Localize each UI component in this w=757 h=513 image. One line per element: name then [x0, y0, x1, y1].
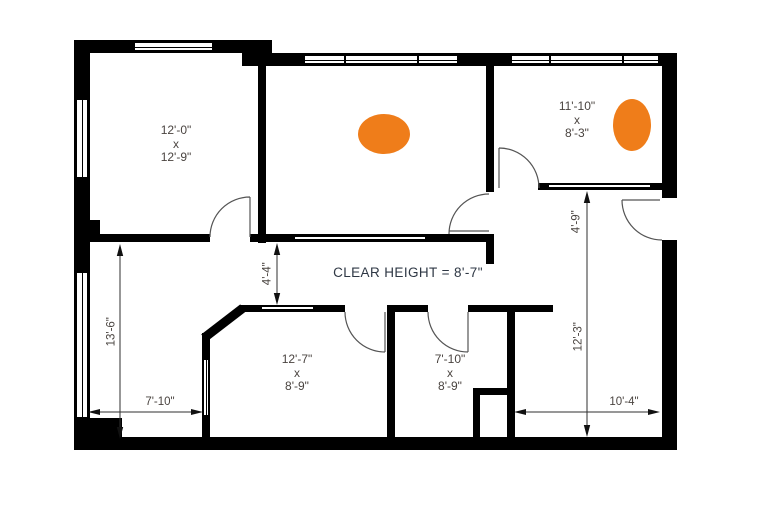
- arrowhead-icon: [514, 409, 526, 415]
- dimension-label-bottom-left-width: 7'-10": [120, 396, 200, 410]
- room-label-bottom-middle: 12'-7"x8'-9": [252, 353, 342, 394]
- room-marker-ellipse: [358, 114, 410, 154]
- arrowhead-icon: [88, 409, 100, 415]
- room-width: 7'-10": [435, 352, 466, 366]
- diagonal-wall: [204, 308, 243, 338]
- dimension-label-corridor-width: 4'-4": [261, 244, 275, 304]
- room-depth: 8'-3": [565, 126, 589, 140]
- dimension-label-hall-upper: 4'-9": [570, 192, 584, 252]
- arrowhead-icon: [584, 425, 590, 437]
- dimension-label-left-height: 13'-6": [105, 302, 119, 362]
- clear-height-annotation: CLEAR HEIGHT = 8'-7": [308, 266, 508, 280]
- arrowhead-icon: [274, 293, 280, 305]
- arrowhead-icon: [117, 244, 123, 256]
- room-width: 11'-10": [559, 99, 595, 113]
- room-sep: x: [447, 366, 453, 380]
- door-arc: [499, 148, 539, 188]
- room-sep: x: [574, 113, 580, 127]
- room-width: 12'-0": [161, 123, 192, 137]
- room-width: 12'-7": [282, 352, 313, 366]
- door-arc: [622, 200, 662, 240]
- room-sep: x: [173, 137, 179, 151]
- door-arc: [428, 312, 468, 352]
- door-arc: [210, 197, 250, 237]
- arrowhead-icon: [584, 191, 590, 203]
- arrowhead-icon: [648, 409, 660, 415]
- arrowhead-icon: [117, 427, 123, 439]
- room-label-bottom-right: 7'-10"x8'-9": [405, 353, 495, 394]
- room-label-top-right: 11'-10"x8'-3": [532, 100, 622, 141]
- dimension-label-bottom-right-width: 10'-4": [584, 396, 664, 410]
- door-arc: [345, 312, 385, 352]
- room-depth: 8'-9": [438, 379, 462, 393]
- arrowhead-icon: [274, 243, 280, 255]
- arrowhead-icon: [191, 409, 203, 415]
- room-depth: 12'-9": [161, 150, 192, 164]
- dimension-label-hall-lower: 12'-3": [572, 307, 586, 367]
- floor-plan: 12'-0"x12'-9" 11'-10"x8'-3" 12'-7"x8'-9"…: [0, 0, 757, 513]
- door-arc: [449, 194, 489, 234]
- room-sep: x: [294, 366, 300, 380]
- plan-overlay: [0, 0, 757, 513]
- room-label-top-left: 12'-0"x12'-9": [131, 124, 221, 165]
- room-depth: 8'-9": [285, 379, 309, 393]
